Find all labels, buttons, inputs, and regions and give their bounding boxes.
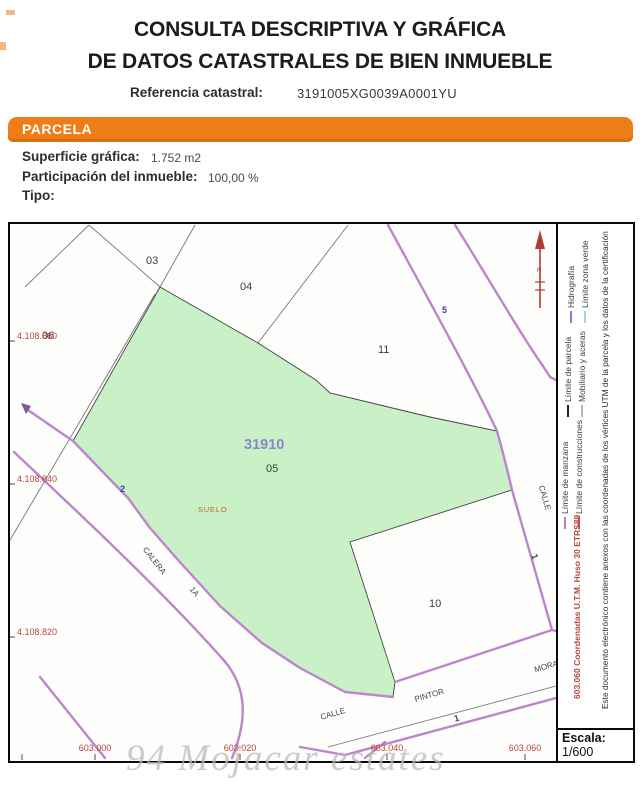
parcela-banner-label: PARCELA bbox=[22, 121, 92, 137]
house-number-1-bottom: 1 bbox=[453, 713, 461, 724]
house-number-2: 2 bbox=[120, 484, 125, 494]
legend-swatch-construcciones bbox=[578, 517, 580, 529]
map-drawing: N 03 04 06 11 05 10 31910 SUELO CALERA 1… bbox=[10, 224, 556, 761]
parcel-label-05: 05 bbox=[266, 463, 278, 475]
title-line-2: DE DATOS CATASTRALES DE BIEN INMUEBLE bbox=[0, 46, 640, 78]
title-line-1: CONSULTA DESCRIPTIVA Y GRÁFICA bbox=[0, 14, 640, 46]
scale-label: Escala: bbox=[562, 731, 633, 745]
utm-system-note: 603.060 Coordenadas U.T.M. Huso 30 ETRS8… bbox=[572, 515, 582, 699]
street-calera-num: 1A bbox=[188, 585, 202, 599]
legend-label: Mobiliario y aceras bbox=[577, 331, 587, 402]
coord-x-0: 603.000 bbox=[79, 743, 112, 753]
scale-box: Escala: 1/600 bbox=[558, 728, 633, 761]
subject-parcel-id: 31910 bbox=[244, 437, 284, 453]
scale-value: 1/600 bbox=[562, 745, 633, 759]
legend-item-zona-verde: Límite zona verde bbox=[580, 240, 590, 323]
coord-y-0: 4.108.860 bbox=[17, 331, 57, 341]
certification-note: Este documento electrónico contiene anex… bbox=[600, 231, 610, 709]
map-legend-sidebar: 603.060 Coordenadas U.T.M. Huso 30 ETRS8… bbox=[556, 224, 633, 761]
cadastral-document-page: CONSULTA DESCRIPTIVA Y GRÁFICA DE DATOS … bbox=[0, 0, 640, 794]
parcel-label-10: 10 bbox=[429, 598, 441, 610]
legend-item-mobiliario: Mobiliario y aceras bbox=[577, 331, 587, 417]
parcel-label-11: 11 bbox=[378, 344, 389, 356]
land-use-label: SUELO bbox=[198, 505, 227, 514]
legend-label: Hidrografía bbox=[566, 266, 576, 308]
parcela-section-banner: PARCELA bbox=[8, 117, 633, 142]
street-mora: MORA bbox=[533, 659, 556, 674]
legend-swatch-parcela bbox=[567, 405, 569, 417]
coord-x-3: 603.060 bbox=[509, 743, 542, 753]
legend-swatch-manzana bbox=[564, 517, 566, 529]
street-calle-bottom: CALLE bbox=[319, 706, 346, 722]
legend-label: Límite de construcciones bbox=[574, 420, 584, 514]
street-calle-right: CALLE bbox=[537, 484, 553, 511]
street-pintor: PINTOR bbox=[414, 687, 446, 704]
legend-item-limite-parcela: Límite de parcela bbox=[563, 337, 573, 417]
legend-item-hidrografia: Hidrografía bbox=[566, 266, 576, 323]
north-arrow-icon: N bbox=[535, 230, 545, 308]
agency-watermark: 94 Mojacar estates bbox=[126, 737, 446, 780]
legend-label: Límite de parcela bbox=[563, 337, 573, 402]
legend-swatch-hidrografia bbox=[570, 311, 572, 323]
legend-label: Límite de manzana bbox=[560, 442, 570, 514]
north-label: N bbox=[537, 268, 541, 274]
legend-rotated-block: 603.060 Coordenadas U.T.M. Huso 30 ETRS8… bbox=[558, 224, 633, 727]
participacion-label: Participación del inmueble: bbox=[22, 169, 198, 184]
cadastral-reference-value: 3191005XG0039A0001YU bbox=[297, 86, 457, 101]
street-calera: CALERA bbox=[141, 545, 168, 576]
legend-swatch-mobiliario bbox=[581, 405, 583, 417]
superficie-label: Superficie gráfica: bbox=[22, 149, 140, 164]
superficie-value: 1.752 m2 bbox=[151, 151, 201, 165]
legend-label: Límite zona verde bbox=[580, 240, 590, 308]
cadastral-reference-label: Referencia catastral: bbox=[130, 85, 263, 100]
legend-swatch-zona-verde bbox=[584, 311, 586, 323]
coord-y-2: 4.108.820 bbox=[17, 627, 57, 637]
document-title: CONSULTA DESCRIPTIVA Y GRÁFICA DE DATOS … bbox=[0, 14, 640, 78]
parcel-label-03: 03 bbox=[146, 255, 158, 267]
legend-item-limite-manzana: Límite de manzana bbox=[560, 442, 570, 529]
tipo-label: Tipo: bbox=[22, 188, 55, 203]
legend-item-limite-construcciones: Límite de construcciones bbox=[574, 420, 584, 529]
parcel-label-04: 04 bbox=[240, 281, 252, 293]
house-number-5: 5 bbox=[442, 305, 447, 315]
cadastral-map: N 03 04 06 11 05 10 31910 SUELO CALERA 1… bbox=[8, 222, 635, 763]
coord-y-1: 4.108.840 bbox=[17, 474, 57, 484]
participacion-value: 100,00 % bbox=[208, 171, 259, 185]
